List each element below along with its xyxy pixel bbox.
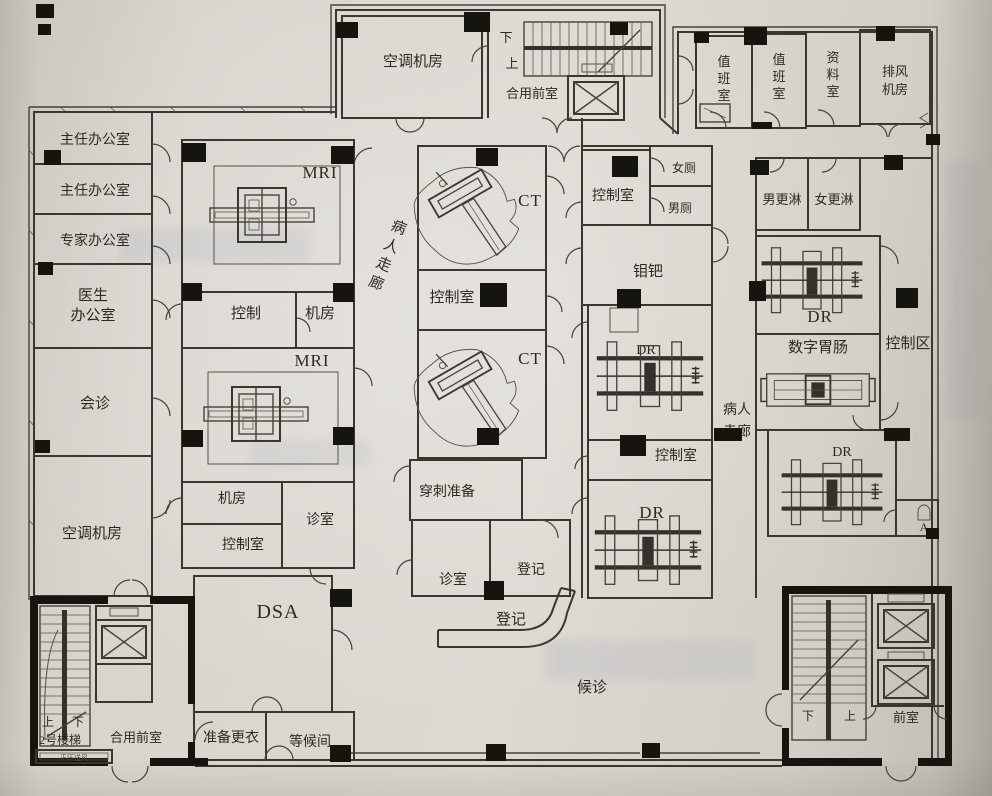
bottom-left-tower: 上 下 2号楼梯 合用前室 正压送风 xyxy=(30,580,213,782)
top-tower: 空调机房 下 上 合用前室 xyxy=(342,16,652,133)
room-label-puncture-prep: 穿刺准备 xyxy=(419,483,475,500)
room-label-digital-gi: 数字胃肠 xyxy=(788,339,848,356)
room-label-machine-room-2: 机房 xyxy=(218,491,246,507)
mri-machine-icon-2 xyxy=(204,387,308,441)
room-label-waiting-lounge: 等候间 xyxy=(289,733,331,750)
floor-plan-drawing: 主任办公室 主任办公室 专家办公室 医生 办公室 会诊 空调机房 空调机房 下 … xyxy=(0,0,992,796)
room-label-men-shower: 男更淋 xyxy=(762,192,801,207)
room-label-prep-changing: 准备更衣 xyxy=(203,729,259,746)
room-label-consultation: 会诊 xyxy=(80,395,110,412)
top-right-wing: 值班室 值班室 资料室 排风 机房 xyxy=(678,30,930,137)
room-label-control-room-mri: 控制室 xyxy=(222,536,264,553)
corridor-label-patient-right-line1: 病人 xyxy=(723,402,751,418)
room-label-women-shower: 女更淋 xyxy=(814,192,853,207)
room-label-registration-room: 登记 xyxy=(517,562,545,578)
digital-gi-machine-icon xyxy=(761,374,875,406)
room-label-director-office-2: 主任办公室 xyxy=(60,182,130,199)
left-wing: 主任办公室 主任办公室 专家办公室 医生 办公室 会诊 空调机房 xyxy=(34,112,170,596)
room-label-control-room-mid: 控制室 xyxy=(655,447,697,464)
room-label-director-office-1: 主任办公室 xyxy=(60,131,130,148)
room-label-dr-right-2: DR xyxy=(832,445,852,460)
room-label-ac-room-top: 空调机房 xyxy=(383,53,443,70)
room-label-exhaust-fan-line1: 排风 xyxy=(882,64,908,79)
label-waiting-area: 候诊 xyxy=(577,679,607,696)
dr-machine-icon-3 xyxy=(762,248,863,313)
label-air-shaft: 正压送风 xyxy=(60,753,88,762)
room-label-dr-right-1: DR xyxy=(807,307,833,326)
room-label-dsa: DSA xyxy=(256,601,299,623)
bottom-right-tower: 下 上 前室 xyxy=(766,586,952,781)
elevator-bottom-right-1-icon xyxy=(878,594,934,648)
room-label-ct-control-room: 控制室 xyxy=(429,289,474,306)
elevator-bottom-left-icon xyxy=(96,606,152,702)
room-label-ct-2: CT xyxy=(518,349,542,368)
dr-machine-icon-2 xyxy=(595,516,701,584)
room-label-duty-room-1: 值班室 xyxy=(717,54,730,103)
room-label-archive-room: 资料室 xyxy=(826,50,839,99)
room-label-expert-office: 专家办公室 xyxy=(60,232,130,249)
room-label-exhaust-fan-line2: 机房 xyxy=(882,82,908,97)
dr-machine-icon-4 xyxy=(782,460,883,525)
stair-label-up-top: 上 xyxy=(505,56,518,71)
room-label-men-toilet: 男厕 xyxy=(668,201,692,215)
room-label-mammography: 钼钯 xyxy=(633,263,663,280)
mid-right-block: 控制室 女厕 男厕 钼钯 DR 控制室 DR xyxy=(566,146,712,598)
stair-label-down-top: 下 xyxy=(499,30,512,45)
room-label-mri-1: MRI xyxy=(302,163,337,182)
label-registration-desk: 登记 xyxy=(496,611,526,628)
ct-block: CT CT 控制室 穿刺准备 诊室 登记 登记 候诊 xyxy=(394,118,712,696)
stair-top-icon xyxy=(524,22,652,76)
room-label-mri-2: MRI xyxy=(294,351,329,370)
stair-label-down-br: 下 xyxy=(802,709,814,723)
room-label-clinic-2: 诊室 xyxy=(439,571,467,588)
stair-label-down-bl: 下 xyxy=(72,715,84,729)
room-label-shared-front-top: 合用前室 xyxy=(506,86,558,101)
stair-label-up-bl: 上 xyxy=(42,715,54,729)
stair-label-up-br: 上 xyxy=(844,709,856,723)
room-label-clinic-1: 诊室 xyxy=(306,511,334,528)
room-label-mri-control: 控制 xyxy=(231,305,261,322)
elevator-bottom-right-2-icon xyxy=(878,652,934,704)
corridor-label-control-area: 控制区 xyxy=(885,335,930,352)
room-label-ac-room-left: 空调机房 xyxy=(62,525,122,542)
room-label-ct-1: CT xyxy=(518,191,542,210)
room-label-front-room: 前室 xyxy=(893,710,919,725)
room-label-doctor-office-line2: 办公室 xyxy=(70,307,115,324)
stair-name-label: 2号楼梯 xyxy=(39,732,81,747)
elevator-top-icon xyxy=(568,64,624,120)
room-label-doctor-office-line1: 医生 xyxy=(78,287,108,304)
corridor-label-patient-left: 病人走廊 xyxy=(366,217,409,294)
room-label-duty-room-2: 值班室 xyxy=(772,52,785,101)
room-label-mri-machine-room-1: 机房 xyxy=(305,305,335,322)
room-label-control-room-top: 控制室 xyxy=(592,187,634,204)
patient-corridor-right: 病人 走廊 xyxy=(712,146,756,598)
exterior-walls xyxy=(29,5,938,766)
room-label-shared-front-bl: 合用前室 xyxy=(110,730,162,745)
floor-plan-photo: 主任办公室 主任办公室 专家办公室 医生 办公室 会诊 空调机房 空调机房 下 … xyxy=(0,0,992,796)
room-label-women-toilet: 女厕 xyxy=(672,160,696,175)
